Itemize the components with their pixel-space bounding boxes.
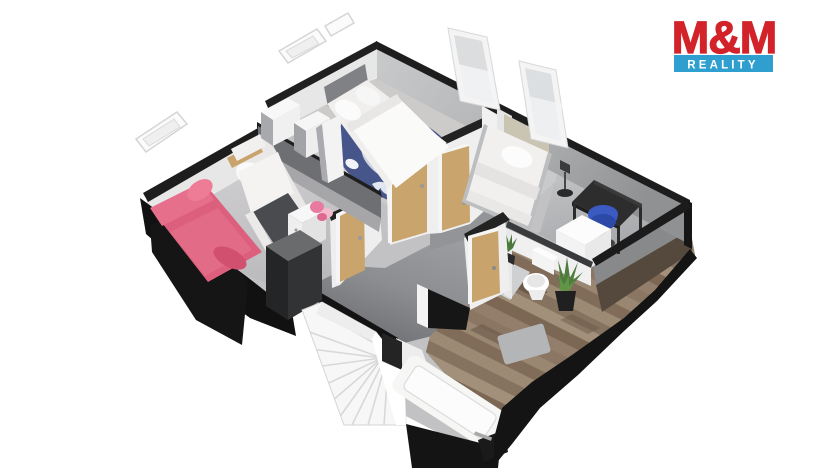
svg-text:REALITY: REALITY (687, 60, 759, 72)
